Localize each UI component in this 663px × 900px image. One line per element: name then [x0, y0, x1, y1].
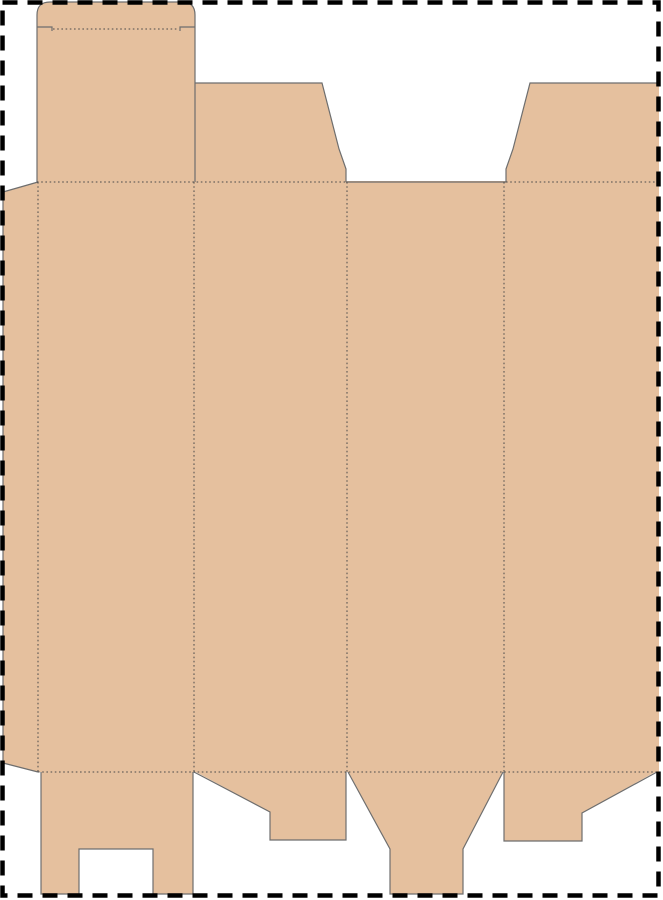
- bottom-tongue-panel-3: [348, 771, 503, 894]
- dust-flap-left: [195, 83, 346, 183]
- carton-fill-group: [3, 2, 659, 894]
- bottom-flap-panel-1: [41, 771, 193, 894]
- dust-flap-right: [506, 83, 659, 183]
- dieline-page: [0, 0, 663, 900]
- carton-body-panels: [37, 181, 659, 772]
- glue-flap: [3, 182, 38, 772]
- dieline-canvas: [0, 0, 663, 900]
- bottom-flap-panel-4: [504, 771, 657, 841]
